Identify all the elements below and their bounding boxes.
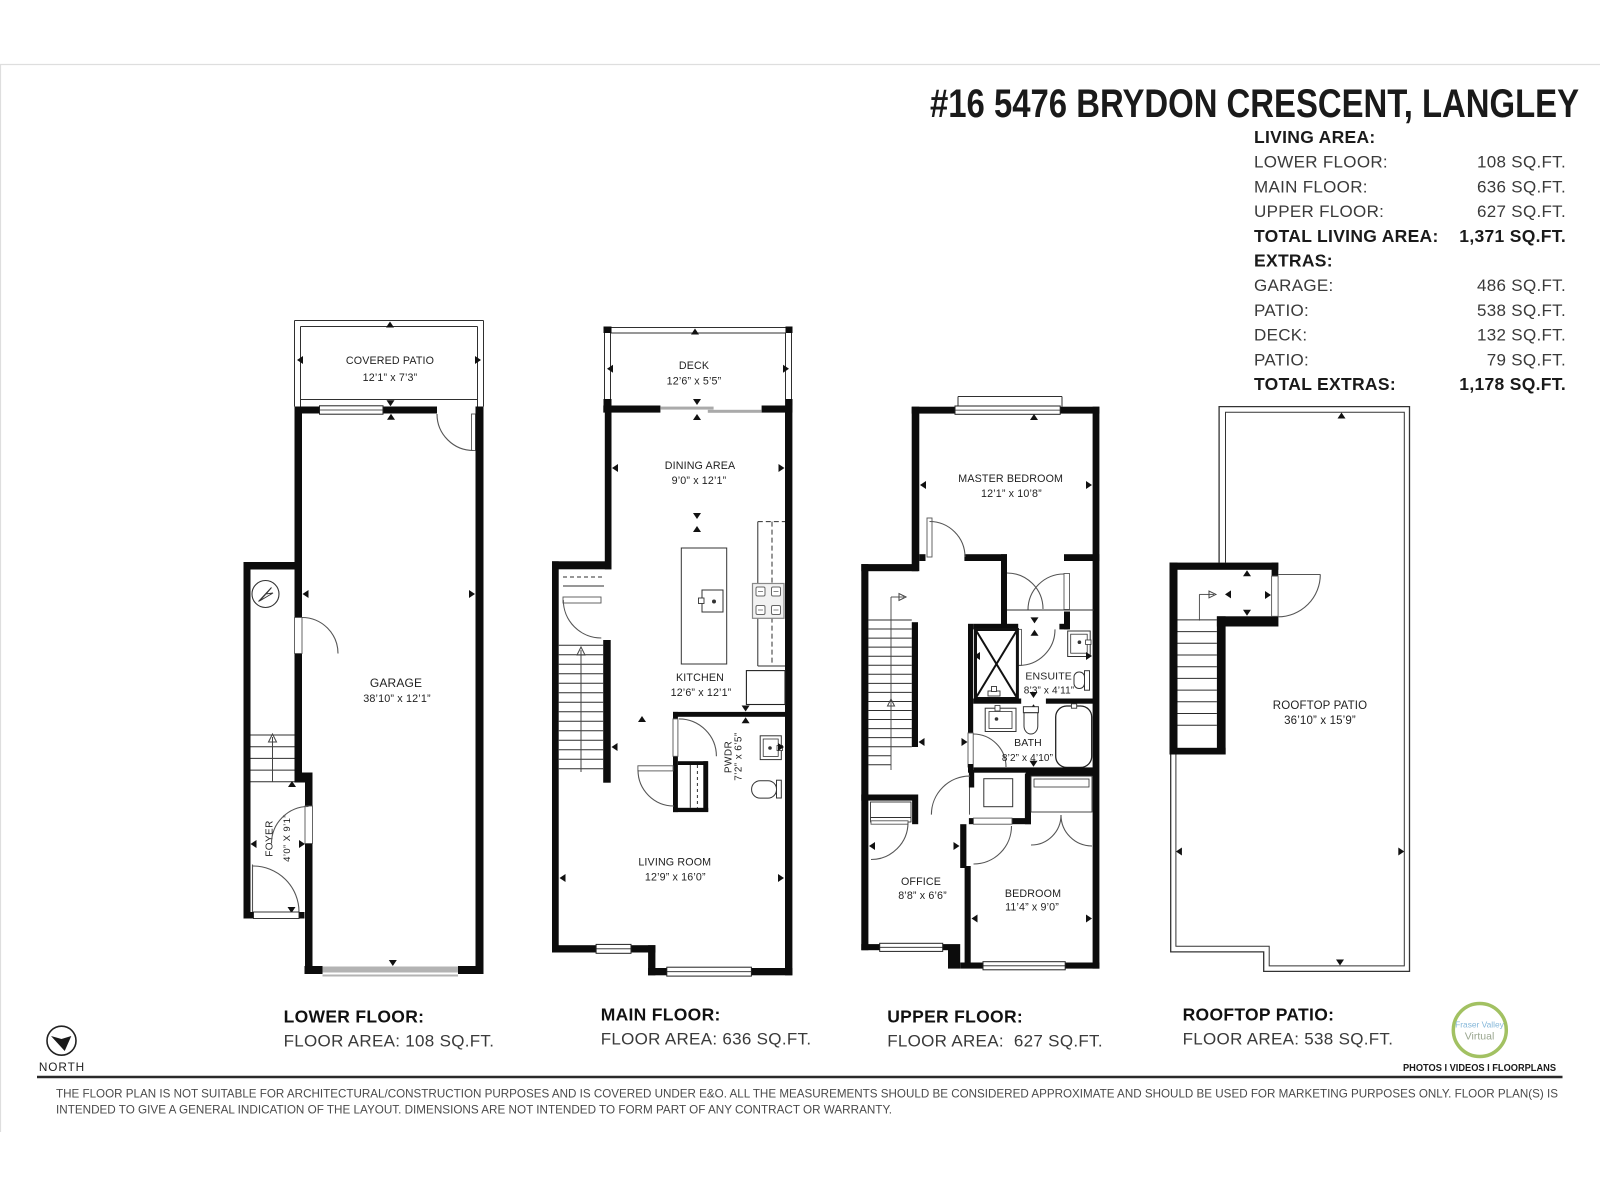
svg-text:12’6” x 12’1”: 12’6” x 12’1” [671,687,732,699]
svg-text:UPPER FLOOR:: UPPER FLOOR: [887,1007,1023,1027]
svg-text:8’2” x 4’10”: 8’2” x 4’10” [1002,753,1053,764]
svg-text:LIVING ROOM: LIVING ROOM [638,857,711,869]
svg-text:EXTRAS:: EXTRAS: [1254,251,1333,271]
svg-text:ROOFTOP PATIO:: ROOFTOP PATIO: [1183,1005,1335,1025]
svg-text:538 SQ.FT.: 538 SQ.FT. [1477,301,1566,320]
svg-text:KITCHEN: KITCHEN [676,672,724,684]
svg-text:FLOOR AREA: 538 SQ.FT.: FLOOR AREA: 538 SQ.FT. [1183,1030,1394,1049]
svg-text:#16 5476 BRYDON CRESCENT, LANG: #16 5476 BRYDON CRESCENT, LANGLEY [930,82,1579,126]
svg-text:11’4” x 9’0”: 11’4” x 9’0” [1005,902,1059,914]
svg-text:PHOTOS I VIDEOS I FLOORPLANS: PHOTOS I VIDEOS I FLOORPLANS [1403,1062,1556,1074]
svg-text:MAIN FLOOR:: MAIN FLOOR: [601,1005,721,1025]
svg-text:LIVING AREA:: LIVING AREA: [1254,127,1376,147]
svg-text:LOWER FLOOR:: LOWER FLOOR: [1254,153,1388,172]
svg-text:12’1” x 10’8”: 12’1” x 10’8” [981,488,1042,500]
svg-text:FLOOR AREA: 627 SQ.FT.: FLOOR AREA: 627 SQ.FT. [887,1032,1103,1051]
svg-text:NORTH: NORTH [39,1060,85,1074]
svg-text:12’6” x 5’5”: 12’6” x 5’5” [667,376,722,388]
svg-text:PATIO:: PATIO: [1254,350,1309,369]
svg-text:38’10” x 12’1”: 38’10” x 12’1” [363,693,431,705]
svg-text:LOWER FLOOR:: LOWER FLOOR: [284,1007,425,1027]
svg-text:TOTAL EXTRAS:: TOTAL EXTRAS: [1254,374,1396,394]
svg-text:1,178 SQ.FT.: 1,178 SQ.FT. [1459,374,1566,394]
svg-text:UPPER FLOOR:: UPPER FLOOR: [1254,202,1384,221]
svg-text:1,371 SQ.FT.: 1,371 SQ.FT. [1459,226,1566,246]
svg-text:FOYER: FOYER [265,820,276,856]
svg-text:DECK: DECK [679,360,710,372]
svg-text:486 SQ.FT.: 486 SQ.FT. [1477,276,1566,295]
svg-text:12’1” x 7’3”: 12’1” x 7’3” [363,372,418,384]
svg-text:ENSUITE: ENSUITE [1025,671,1072,683]
svg-text:4’0” X 9’1”: 4’0” X 9’1” [282,814,293,862]
svg-text:Virtual: Virtual [1465,1031,1495,1043]
svg-text:132 SQ.FT.: 132 SQ.FT. [1477,326,1566,345]
svg-text:79 SQ.FT.: 79 SQ.FT. [1487,350,1566,369]
svg-text:OFFICE: OFFICE [901,876,941,888]
svg-text:GARAGE:: GARAGE: [1254,276,1334,295]
svg-text:TOTAL LIVING AREA:: TOTAL LIVING AREA: [1254,226,1439,246]
svg-text:FLOOR AREA: 636 SQ.FT.: FLOOR AREA: 636 SQ.FT. [601,1030,812,1049]
svg-text:636 SQ.FT.: 636 SQ.FT. [1477,177,1566,196]
svg-text:THE FLOOR PLAN IS NOT SUITABLE: THE FLOOR PLAN IS NOT SUITABLE FOR ARCHI… [56,1087,1558,1101]
svg-text:ROOFTOP PATIO: ROOFTOP PATIO [1273,700,1367,712]
svg-text:Fraser Valley: Fraser Valley [1455,1020,1505,1030]
svg-text:7’2” x 6’5”: 7’2” x 6’5” [734,732,745,780]
svg-text:BEDROOM: BEDROOM [1005,888,1061,900]
svg-text:627 SQ.FT.: 627 SQ.FT. [1477,202,1566,221]
svg-text:MASTER BEDROOM: MASTER BEDROOM [958,473,1063,485]
svg-text:12’9” x 16’0”: 12’9” x 16’0” [645,872,706,884]
svg-text:MAIN FLOOR:: MAIN FLOOR: [1254,177,1368,196]
svg-text:FLOOR AREA: 108 SQ.FT.: FLOOR AREA: 108 SQ.FT. [284,1032,495,1051]
svg-text:PATIO:: PATIO: [1254,301,1309,320]
svg-text:BATH: BATH [1014,737,1042,749]
svg-text:DECK:: DECK: [1254,326,1307,345]
svg-text:8’3” x 4’11”: 8’3” x 4’11” [1024,686,1075,697]
svg-text:8’8” x 6’6”: 8’8” x 6’6” [898,890,947,902]
svg-text:36’10” x 15’9”: 36’10” x 15’9” [1284,715,1356,727]
svg-text:DINING AREA: DINING AREA [665,460,736,472]
svg-text:108 SQ.FT.: 108 SQ.FT. [1477,153,1566,172]
svg-text:COVERED PATIO: COVERED PATIO [346,355,434,367]
svg-text:9’0” x 12’1”: 9’0” x 12’1” [672,475,727,487]
svg-text:INTENDED TO GIVE A GENERAL IND: INTENDED TO GIVE A GENERAL INDICATION OF… [56,1103,892,1117]
svg-text:GARAGE: GARAGE [370,676,422,690]
